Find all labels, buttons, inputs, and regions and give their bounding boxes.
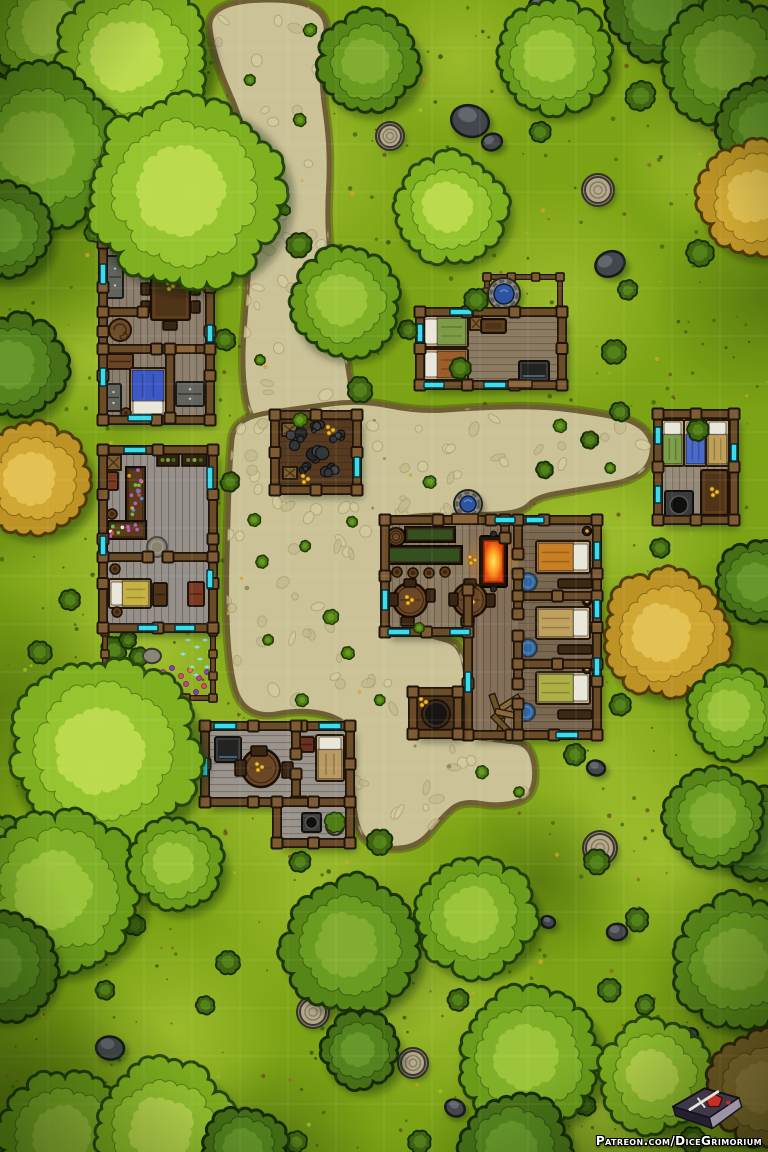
vignette (0, 0, 768, 1152)
map-canvas (0, 0, 768, 1152)
battle-map: Patreon.com/DiceGrimorium (0, 0, 768, 1152)
